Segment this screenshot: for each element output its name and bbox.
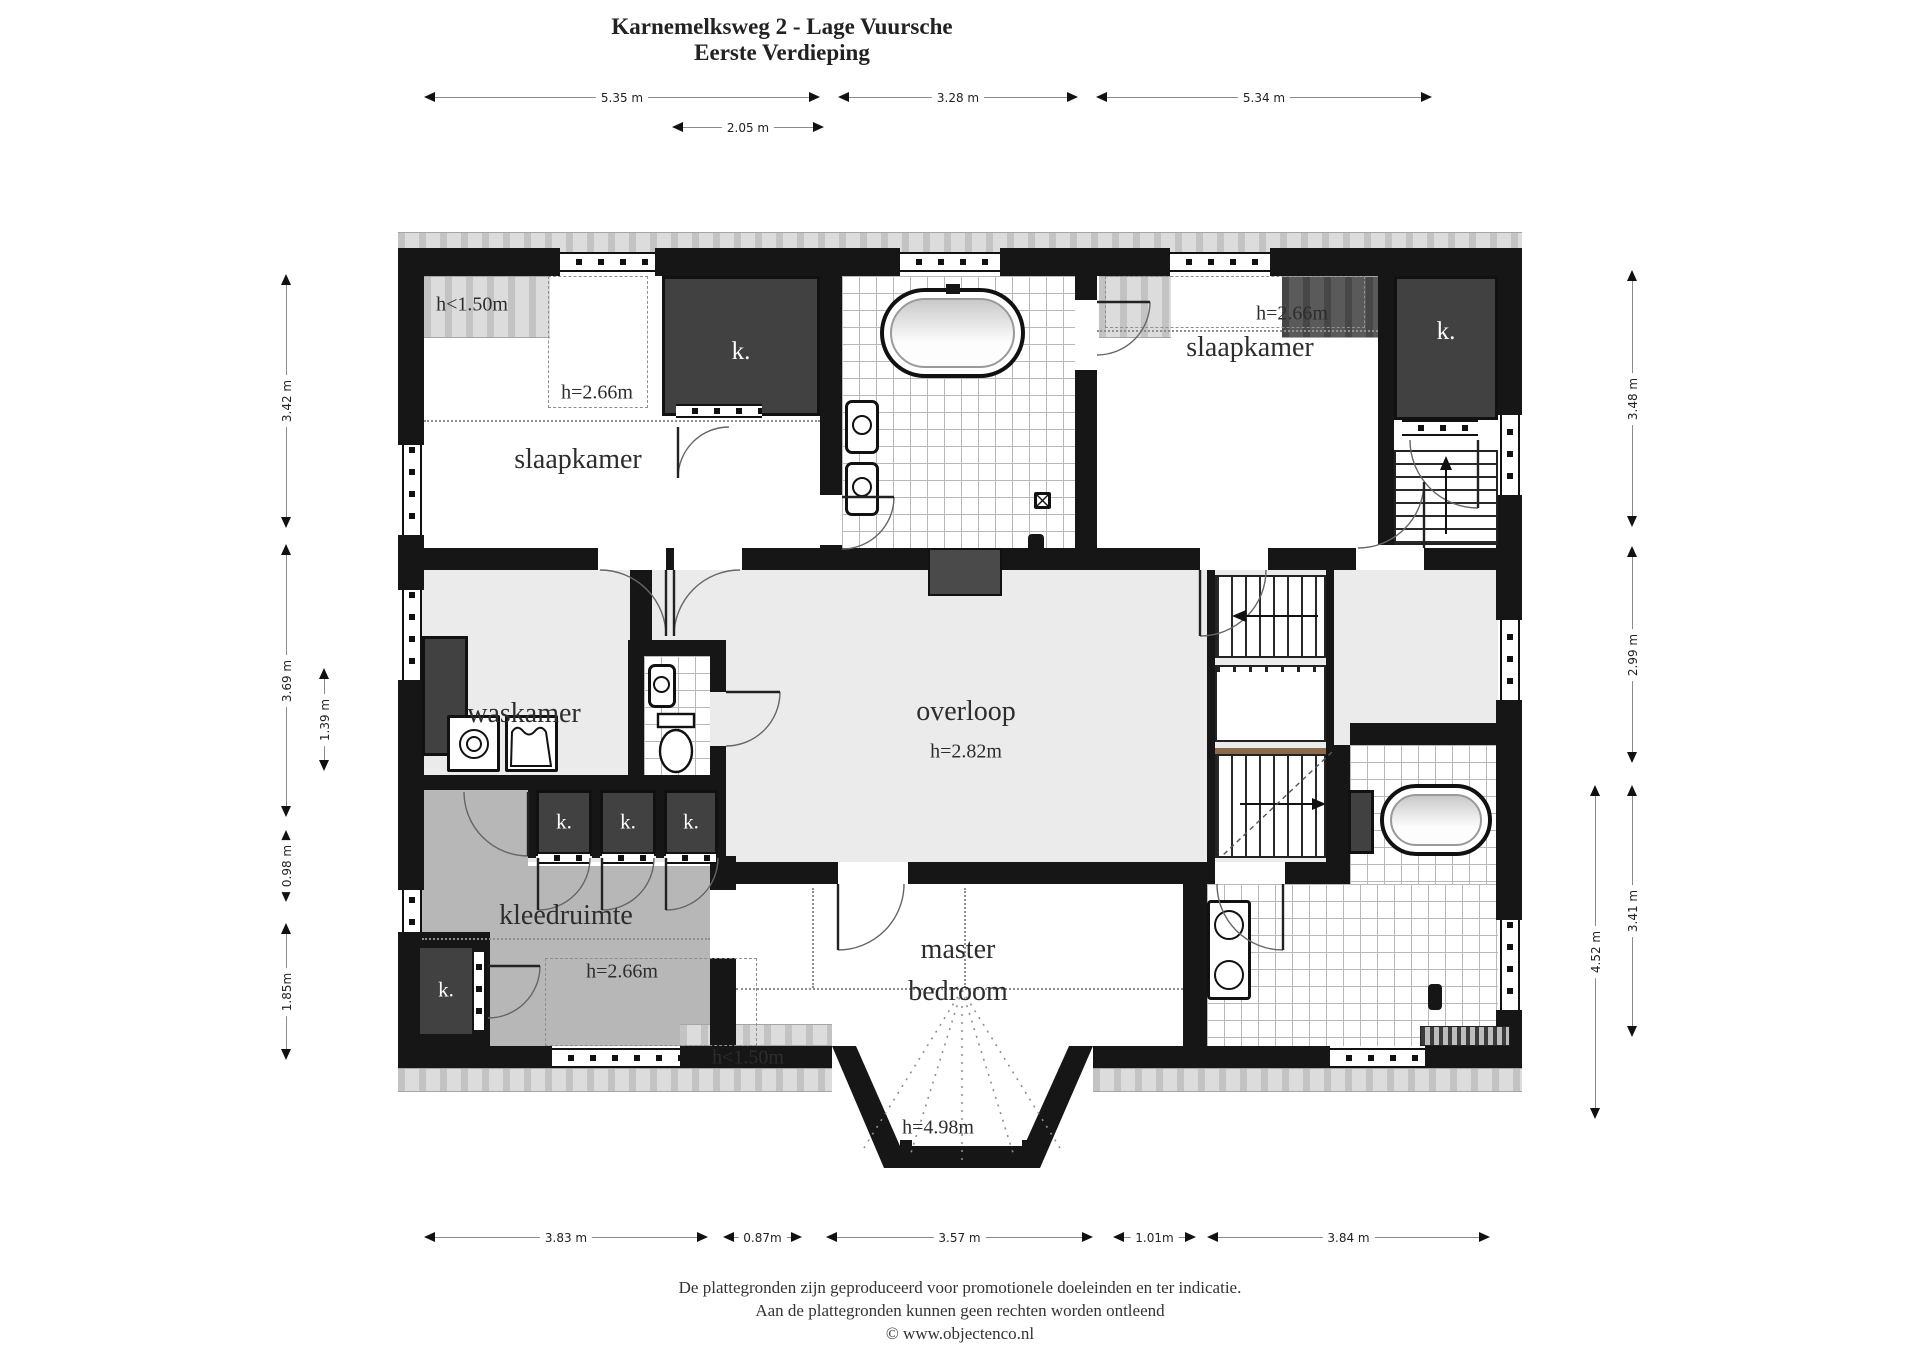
wall — [1183, 884, 1207, 1068]
dimension-left-2: 3.69 m — [277, 544, 297, 817]
wall — [655, 248, 900, 276]
sink-basin — [1214, 960, 1244, 990]
dimension-bottom-3: 3.57 m — [826, 1228, 1093, 1248]
closet-label: k. — [438, 978, 454, 1003]
closet-door-threshold — [538, 852, 590, 864]
wall — [1268, 548, 1356, 570]
roof-eave-bottom-right — [1093, 1068, 1522, 1092]
ceiling-height-overloop: h=2.82m — [930, 741, 1002, 764]
washing-machine-drum — [466, 736, 482, 752]
window — [402, 445, 422, 535]
wall — [592, 790, 600, 858]
window — [560, 252, 655, 272]
wall — [1270, 248, 1522, 276]
dimension-bottom-4: 1.01m — [1113, 1228, 1196, 1248]
wall — [710, 656, 726, 692]
wall — [398, 248, 424, 445]
wall — [398, 680, 424, 890]
dimension-bottom-5: 3.84 m — [1207, 1228, 1490, 1248]
page-title-line1: Karnemelksweg 2 - Lage Vuursche — [0, 14, 1564, 40]
closet-label: k. — [556, 810, 572, 835]
dimension-right-3: 3.41 m — [1623, 785, 1643, 1037]
shower-tap — [1028, 534, 1044, 558]
room-label-slaapkamer-left: slaapkamer — [514, 444, 642, 476]
kleedruimte-passage — [422, 790, 528, 870]
room-label-slaapkamer-right: slaapkamer — [1186, 332, 1314, 364]
sink-basin — [852, 415, 872, 435]
wall — [528, 790, 536, 858]
wall — [1496, 700, 1522, 920]
shower-tap — [1428, 984, 1442, 1010]
window — [402, 590, 422, 680]
wall — [630, 570, 652, 640]
dimension-top-inner: 2.05 m — [672, 118, 824, 138]
ceiling-height-bedroom-left: h=2.66m — [561, 382, 633, 405]
closet-label: k. — [1437, 318, 1456, 346]
sink-basin — [852, 477, 872, 497]
page-title-line2: Eerste Verdieping — [0, 40, 1564, 66]
ceiling-line — [812, 888, 814, 988]
bath-tap — [946, 284, 960, 294]
wall — [666, 548, 674, 570]
wall — [908, 862, 1215, 884]
wall — [718, 790, 726, 858]
staircase-lower-flight — [1215, 754, 1326, 858]
room-label-master-line2: bedroom — [908, 976, 1008, 1008]
wall — [628, 640, 726, 656]
wall — [1425, 1046, 1522, 1068]
dimension-right-outer: 4.52 m — [1586, 785, 1606, 1119]
ceiling-line — [422, 938, 710, 940]
closet-door-threshold — [666, 852, 716, 864]
window — [900, 252, 1000, 272]
wall — [398, 535, 424, 590]
wall — [628, 656, 644, 790]
wc-sink-basin — [653, 676, 670, 693]
closet-bedroom-right — [1394, 276, 1498, 420]
wall — [1075, 276, 1097, 300]
dimension-top-1: 5.35 m — [424, 88, 820, 108]
bay-window — [832, 1046, 1093, 1168]
ceiling-height-bedroom-right: h=2.66m — [1256, 303, 1328, 326]
wall — [1326, 570, 1334, 745]
window — [1170, 252, 1270, 272]
wall — [656, 790, 664, 858]
staircase-attic — [1394, 450, 1498, 545]
shower-drain — [1034, 492, 1051, 509]
bath-mat — [1420, 1026, 1510, 1046]
dimension-right-2: 2.99 m — [1623, 546, 1643, 763]
window — [1500, 415, 1520, 495]
ceiling-height-kleedruimte: h=2.66m — [586, 961, 658, 984]
wall — [1207, 570, 1215, 862]
window — [1500, 920, 1520, 1010]
closet-label: k. — [732, 338, 751, 366]
wall — [1350, 723, 1498, 745]
closet-door-threshold — [676, 404, 762, 418]
staircase-landing — [1215, 665, 1326, 742]
wall — [1496, 495, 1522, 620]
wall — [1285, 862, 1326, 884]
eave-height-bottom: h<1.50m — [712, 1047, 784, 1070]
closet-label: k. — [620, 810, 636, 835]
window — [552, 1048, 680, 1068]
wall — [422, 548, 598, 570]
wall — [1496, 248, 1522, 415]
window — [1500, 620, 1520, 700]
dimension-left-3: 0.98 m — [277, 830, 297, 902]
dimension-left-4: 1.85m — [277, 923, 297, 1060]
bathtub-top — [880, 288, 1025, 378]
eave-height-top-left: h<1.50m — [436, 294, 508, 317]
floor-plan-page: Karnemelksweg 2 - Lage Vuursche Eerste V… — [0, 0, 1920, 1358]
dimension-left-inner: 1.39 m — [315, 668, 335, 771]
doormat — [928, 548, 1002, 596]
wall — [1075, 370, 1097, 570]
wall — [398, 1046, 552, 1068]
sink-basin — [1214, 910, 1244, 940]
ceiling-height-master: h=4.98m — [902, 1117, 974, 1140]
room-label-kleedruimte: kleedruimte — [499, 900, 633, 932]
footer-disclaimer-line2: Aan de plattegronden kunnen geen rechten… — [200, 1301, 1720, 1321]
closet-door-threshold — [1402, 420, 1478, 436]
closet-door-threshold — [602, 852, 654, 864]
wall — [1424, 548, 1498, 570]
niche-master-bath — [1348, 790, 1374, 854]
wall — [1000, 248, 1170, 276]
closet-door-threshold — [472, 952, 486, 1030]
room-label-waskamer: waskamer — [467, 698, 581, 730]
wall — [820, 545, 842, 570]
wall — [1378, 276, 1394, 545]
closet-label: k. — [683, 810, 699, 835]
window — [1330, 1048, 1425, 1068]
wall — [422, 775, 726, 790]
dimension-top-3: 5.34 m — [1096, 88, 1432, 108]
dimension-right-1: 3.48 m — [1623, 270, 1643, 527]
dimension-top-2: 3.28 m — [838, 88, 1078, 108]
roof-eave-bottom-left — [398, 1068, 832, 1092]
room-label-overloop: overloop — [916, 696, 1016, 728]
wall — [726, 862, 838, 884]
dimension-left-1: 3.42 m — [277, 274, 297, 528]
footer-disclaimer-line1: De plattegronden zijn geproduceerd voor … — [200, 1278, 1720, 1298]
staircase-upper-flight — [1215, 575, 1326, 658]
dimension-bottom-1: 3.83 m — [424, 1228, 708, 1248]
room-label-master-line1: master — [921, 934, 996, 966]
dimension-bottom-2: 0.87m — [723, 1228, 802, 1248]
footer-copyright: © www.objectenco.nl — [200, 1324, 1720, 1344]
bathtub-master — [1380, 784, 1492, 856]
wall — [1093, 1046, 1330, 1068]
wall — [820, 276, 842, 495]
ceiling-line — [424, 420, 820, 422]
wall — [1326, 745, 1350, 884]
